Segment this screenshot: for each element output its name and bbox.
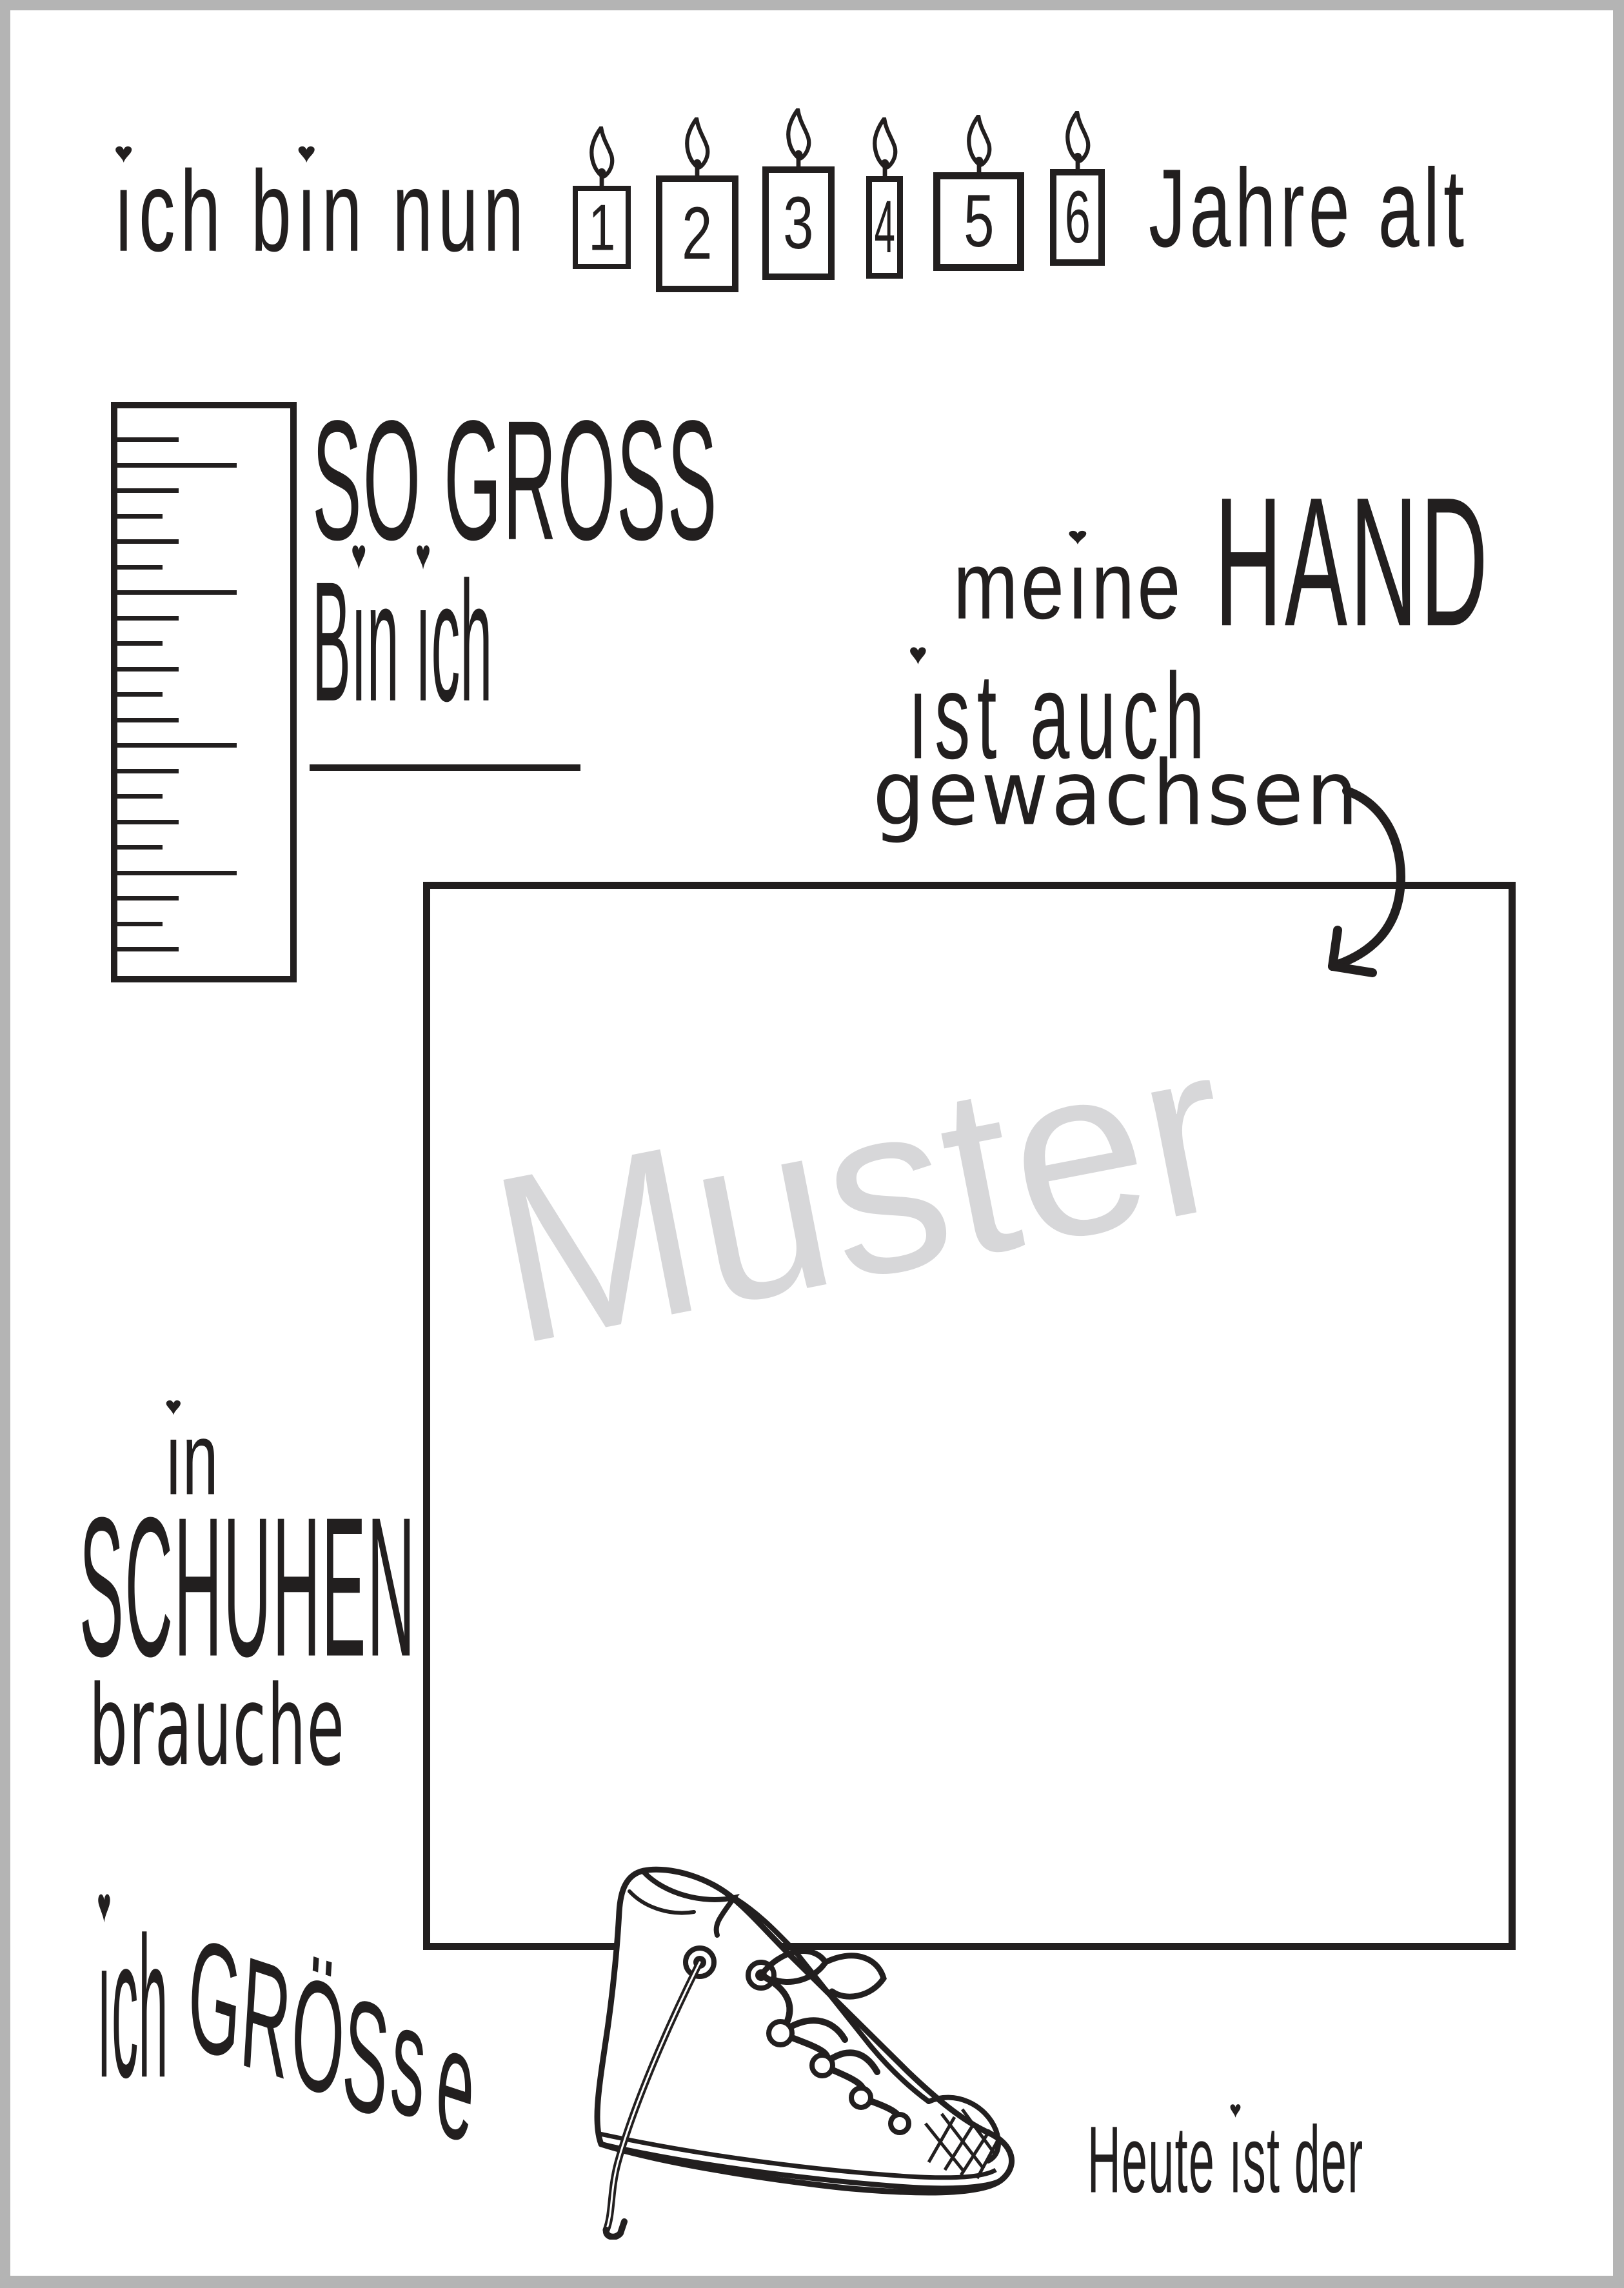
candle-icon: 2 <box>656 175 738 292</box>
shoe-caption-line4: ı♥ch <box>97 1909 168 2110</box>
shoe-caption-size-word: GRÖSse <box>193 1913 516 2288</box>
height-fill-in-line <box>310 764 580 771</box>
ruler-tick <box>117 896 179 900</box>
size-word-letter: S <box>339 1972 393 2143</box>
date-prompt: Heute ı♥st der <box>1087 2112 1364 2207</box>
flame-icon <box>867 117 903 182</box>
ruler-tick <box>117 667 179 671</box>
candle-icon: 1 <box>573 186 631 269</box>
size-word-letter: s <box>387 1977 430 2145</box>
ruler-tick <box>117 794 163 799</box>
candle-number: 1 <box>588 190 615 265</box>
ruler-tick <box>117 463 237 468</box>
ruler-tick <box>117 871 237 875</box>
ruler-illustration <box>111 402 297 982</box>
candle-icon: 6 <box>1050 169 1105 266</box>
hand-caption-line3: gewachsen <box>873 750 1361 839</box>
ruler-tick <box>117 437 179 442</box>
size-word-letter: G <box>184 1913 245 2086</box>
ruler-tick <box>117 692 163 697</box>
curved-arrow-icon <box>1290 768 1458 1000</box>
shoe-caption-line3: brauche <box>89 1671 345 1781</box>
sneaker-illustration <box>568 1853 1025 2240</box>
flame-icon <box>780 108 817 173</box>
ruler-tick <box>117 845 163 850</box>
ruler-tick <box>117 565 163 570</box>
ruler-tick <box>117 743 237 748</box>
flame-icon <box>1060 111 1096 175</box>
candle-number: 3 <box>783 181 813 266</box>
ruler-tick <box>117 616 179 621</box>
candle-number: 5 <box>964 179 994 264</box>
headline-age-prefix: ı♥ch bı♥n nun <box>114 155 529 270</box>
ruler-tick <box>117 590 237 595</box>
ruler-tick <box>117 947 179 951</box>
candle-number: 4 <box>874 184 895 270</box>
ruler-tick <box>117 769 179 773</box>
flame-icon <box>679 117 715 182</box>
size-word-letter: R <box>237 1932 295 2104</box>
ruler-tick <box>117 488 179 493</box>
height-caption-line1: SO GROSS <box>312 397 718 568</box>
candle-number: 6 <box>1064 175 1090 260</box>
headline-age-suffix: Jahre alt <box>1149 154 1468 265</box>
hand-caption-small: meı♥ne <box>953 538 1183 635</box>
candle-icon: 4 <box>866 176 903 279</box>
ruler-tick <box>117 539 179 544</box>
flame-icon <box>961 115 997 179</box>
ruler-tick <box>117 718 179 722</box>
candle-icon: 5 <box>933 172 1024 271</box>
ruler-tick <box>117 641 163 646</box>
size-word-letter: e <box>432 2000 479 2169</box>
candle-icon: 3 <box>762 166 835 280</box>
flame-icon <box>584 126 620 191</box>
birthday-growth-worksheet: ı♥ch bı♥n nun 1 2 3 4 <box>0 0 1624 2288</box>
ruler-tick <box>117 820 179 824</box>
height-caption-line2: Bı♥n ı♥ch <box>312 558 492 729</box>
hand-caption-large: HAND <box>1214 470 1490 653</box>
candle-number: 2 <box>682 191 712 276</box>
shoe-caption-line2: SCHUHEN <box>79 1489 416 1687</box>
ruler-tick <box>117 922 163 926</box>
ruler-tick <box>117 514 163 519</box>
size-word-letter: Ö <box>287 1950 348 2124</box>
